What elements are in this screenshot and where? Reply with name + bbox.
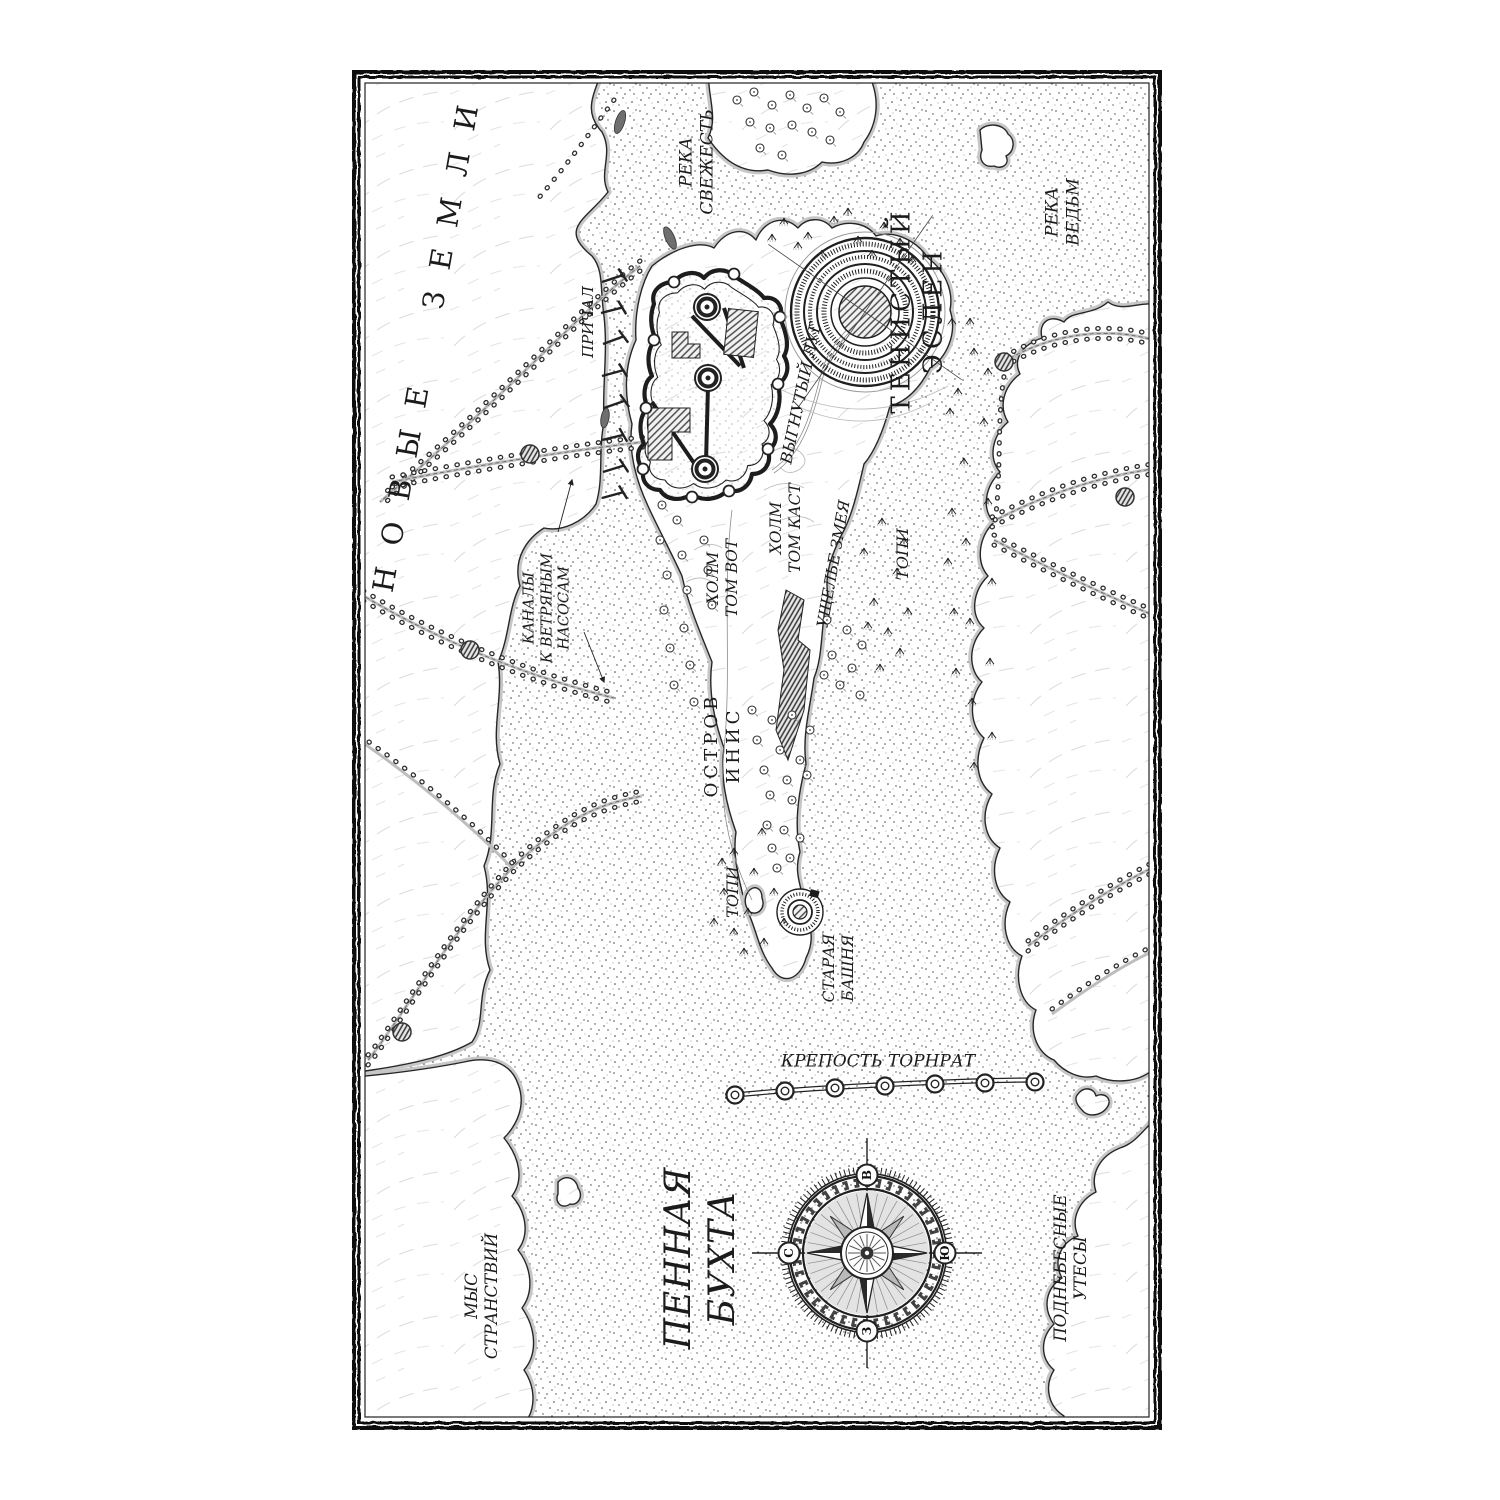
cape-peninsula xyxy=(352,1060,534,1430)
castle-eslen xyxy=(638,269,788,503)
page: { "map": { "labels": { "new_lands": "НОВ… xyxy=(0,0,1500,1500)
old-tower xyxy=(777,889,823,935)
fantasy-map: НОВЫЕ ЗЕМЛИ РЕКА СВЕЖЕСТЬ РЕКА ВЕДЬМ ПРИ… xyxy=(352,70,1162,1430)
map-artwork xyxy=(352,70,1162,1430)
